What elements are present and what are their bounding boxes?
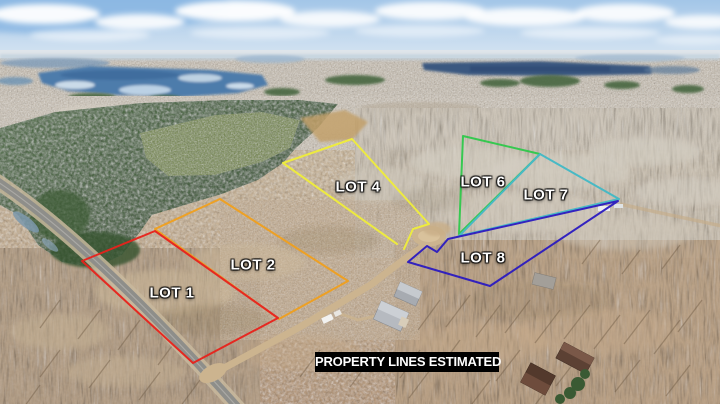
lot-8-label: LOT 8 [460,250,505,267]
scene-svg [0,0,720,404]
lot-7-label: LOT 7 [523,187,568,204]
lot-2-label: LOT 2 [230,257,275,274]
lot-1-label: LOT 1 [149,285,194,302]
lot-6-label: LOT 6 [460,174,505,191]
aerial-photo: LOT 1 LOT 2 LOT 4 LOT 6 LOT 7 LOT 8 PROP… [0,0,720,404]
property-lines-banner: PROPERTY LINES ESTIMATED [315,352,499,372]
lot-4-label: LOT 4 [335,179,380,196]
